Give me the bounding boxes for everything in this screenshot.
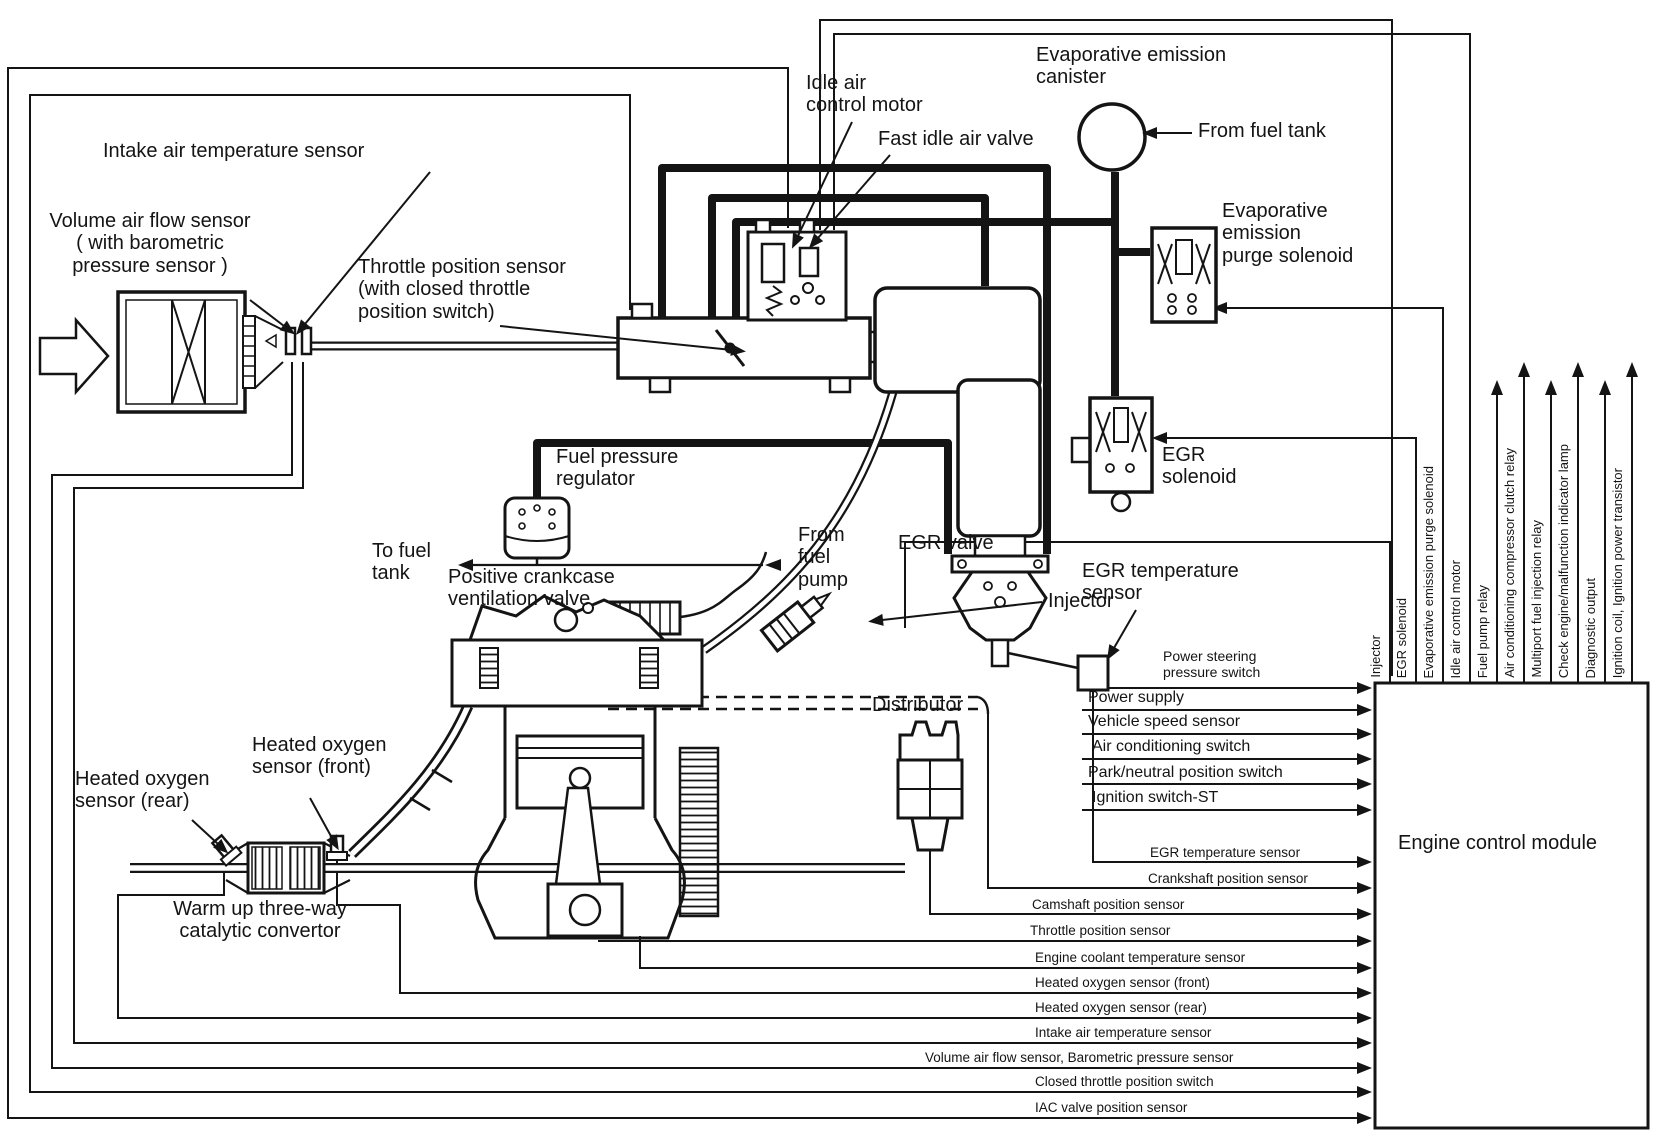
vacuum-diagram: Intake air temperature sensor Volume air… bbox=[0, 0, 1654, 1136]
label-distributor: Distributor bbox=[872, 694, 963, 716]
ecm-input-label: Vehicle speed sensor bbox=[1088, 713, 1240, 731]
pressure-sensor-element bbox=[286, 328, 295, 354]
engine-control-module-box bbox=[1375, 683, 1648, 1128]
ecm-input-label: IAC valve position sensor bbox=[1035, 1100, 1187, 1116]
fast-idle-air-valve bbox=[800, 248, 818, 276]
valve-spring bbox=[640, 648, 658, 688]
ecm-io-label-ignition-coil: Ignition coil, Ignition power transistor bbox=[1611, 468, 1624, 678]
label-fuel-pressure-regulator: Fuel pressure regulator bbox=[556, 446, 678, 491]
ecm-io-label-egr-solenoid: EGR solenoid bbox=[1395, 598, 1408, 678]
ecm-input-label: Engine coolant temperature sensor bbox=[1035, 950, 1245, 966]
surge-tank bbox=[870, 288, 1040, 536]
evap-canister bbox=[1079, 104, 1145, 170]
ecm-io-label-check-engine-lamp: Check engine/malfunction indicator lamp bbox=[1557, 444, 1570, 678]
ecm-input-label: Crankshaft position sensor bbox=[1148, 871, 1308, 887]
flow-direction-icon bbox=[266, 335, 276, 347]
ecm-io-label-ac-compressor-clutch-relay: Air conditioning compressor clutch relay bbox=[1503, 448, 1516, 678]
ecm-input-label: Power steeringpressure switch bbox=[1163, 648, 1260, 680]
label-evap-purge-solenoid: Evaporative emission purge solenoid bbox=[1222, 200, 1353, 267]
wrist-pin bbox=[570, 768, 590, 788]
label-from-fuel-pump: From fuel pump bbox=[798, 524, 848, 591]
label-ho2-rear: Heated oxygen sensor (rear) bbox=[75, 768, 210, 813]
ecm-io-label-fuel-pump-relay: Fuel pump relay bbox=[1476, 585, 1489, 678]
label-catalytic-convertor: Warm up three-way catalytic convertor bbox=[140, 898, 380, 943]
air-flow-sensor bbox=[40, 292, 311, 412]
ecm-input-label: Closed throttle position switch bbox=[1035, 1074, 1214, 1090]
heated-o2-sensor-front bbox=[327, 836, 347, 860]
engine bbox=[452, 596, 718, 938]
ecm-input-label: Camshaft position sensor bbox=[1032, 897, 1184, 913]
ecm-input-label: Ignition switch-ST bbox=[1092, 789, 1218, 807]
label-idle-air-control-motor: Idle air control motor bbox=[806, 72, 923, 117]
ecm-input-label: EGR temperature sensor bbox=[1150, 845, 1300, 861]
ecm-input-label: Throttle position sensor bbox=[1030, 923, 1170, 939]
ecm-input-label: Heated oxygen sensor (front) bbox=[1035, 975, 1210, 991]
airflow-arrow-icon bbox=[40, 320, 108, 392]
ecm-input-label: Park/neutral position switch bbox=[1088, 764, 1283, 782]
ecm-io-label-injector: Injector bbox=[1369, 635, 1382, 678]
label-egr-solenoid: EGR solenoid bbox=[1162, 444, 1237, 489]
egr-solenoid bbox=[1072, 398, 1152, 511]
valve-spring bbox=[480, 648, 498, 688]
evap-purge-solenoid bbox=[1152, 228, 1216, 322]
wire-evap-purge bbox=[1226, 308, 1443, 683]
label-ho2-front: Heated oxygen sensor (front) bbox=[252, 734, 387, 779]
rocker bbox=[555, 609, 577, 631]
label-fast-idle-air-valve: Fast idle air valve bbox=[878, 128, 1034, 150]
heated-o2-sensor-rear bbox=[209, 833, 241, 866]
ecm-io-label-idle-air-control-motor: Idle air control motor bbox=[1449, 560, 1462, 679]
idle-air-assembly bbox=[748, 220, 846, 320]
ecm-input-label: Intake air temperature sensor bbox=[1035, 1025, 1211, 1041]
label-egr-temp-sensor: EGR temperature sensor bbox=[1082, 560, 1239, 605]
label-volume-air-flow-sensor: Volume air flow sensor ( with barometric… bbox=[30, 210, 270, 277]
ecm-input-label: Air conditioning switch bbox=[1092, 738, 1250, 756]
label-evap-canister: Evaporative emission canister bbox=[1036, 44, 1226, 89]
ecm-io-label-diagnostic-output: Diagnostic output bbox=[1584, 578, 1597, 678]
temp-sensor-element bbox=[302, 328, 311, 354]
fuel-pressure-regulator bbox=[505, 498, 569, 565]
label-pcv-valve: Positive crankcase ventilation valve bbox=[448, 566, 615, 611]
label-egr-valve: EGR valve bbox=[898, 532, 994, 554]
egr-passage bbox=[680, 748, 718, 916]
ecm-title: Engine control module bbox=[1398, 832, 1597, 855]
ecm-input-label: Volume air flow sensor, Barometric press… bbox=[925, 1050, 1233, 1066]
ecm-io-label-mfi-relay: Multiport fuel injection relay bbox=[1530, 520, 1543, 678]
label-to-fuel-tank: To fuel tank bbox=[372, 540, 431, 585]
ecm-input-label: Power supply bbox=[1088, 689, 1184, 707]
idle-air-control-motor bbox=[762, 244, 784, 282]
fuel-flow-arrow-icon bbox=[765, 559, 781, 571]
label-from-fuel-tank: From fuel tank bbox=[1198, 120, 1326, 142]
label-throttle-position-sensor: Throttle position sensor (with closed th… bbox=[358, 256, 566, 323]
egr-temp-sensor bbox=[1078, 656, 1108, 690]
distributor bbox=[898, 722, 962, 850]
label-intake-air-temp-sensor: Intake air temperature sensor bbox=[103, 140, 364, 162]
ecm-io-label-evap-purge-solenoid: Evaporative emission purge solenoid bbox=[1422, 466, 1435, 678]
ecm-input-label: Heated oxygen sensor (rear) bbox=[1035, 1000, 1207, 1016]
